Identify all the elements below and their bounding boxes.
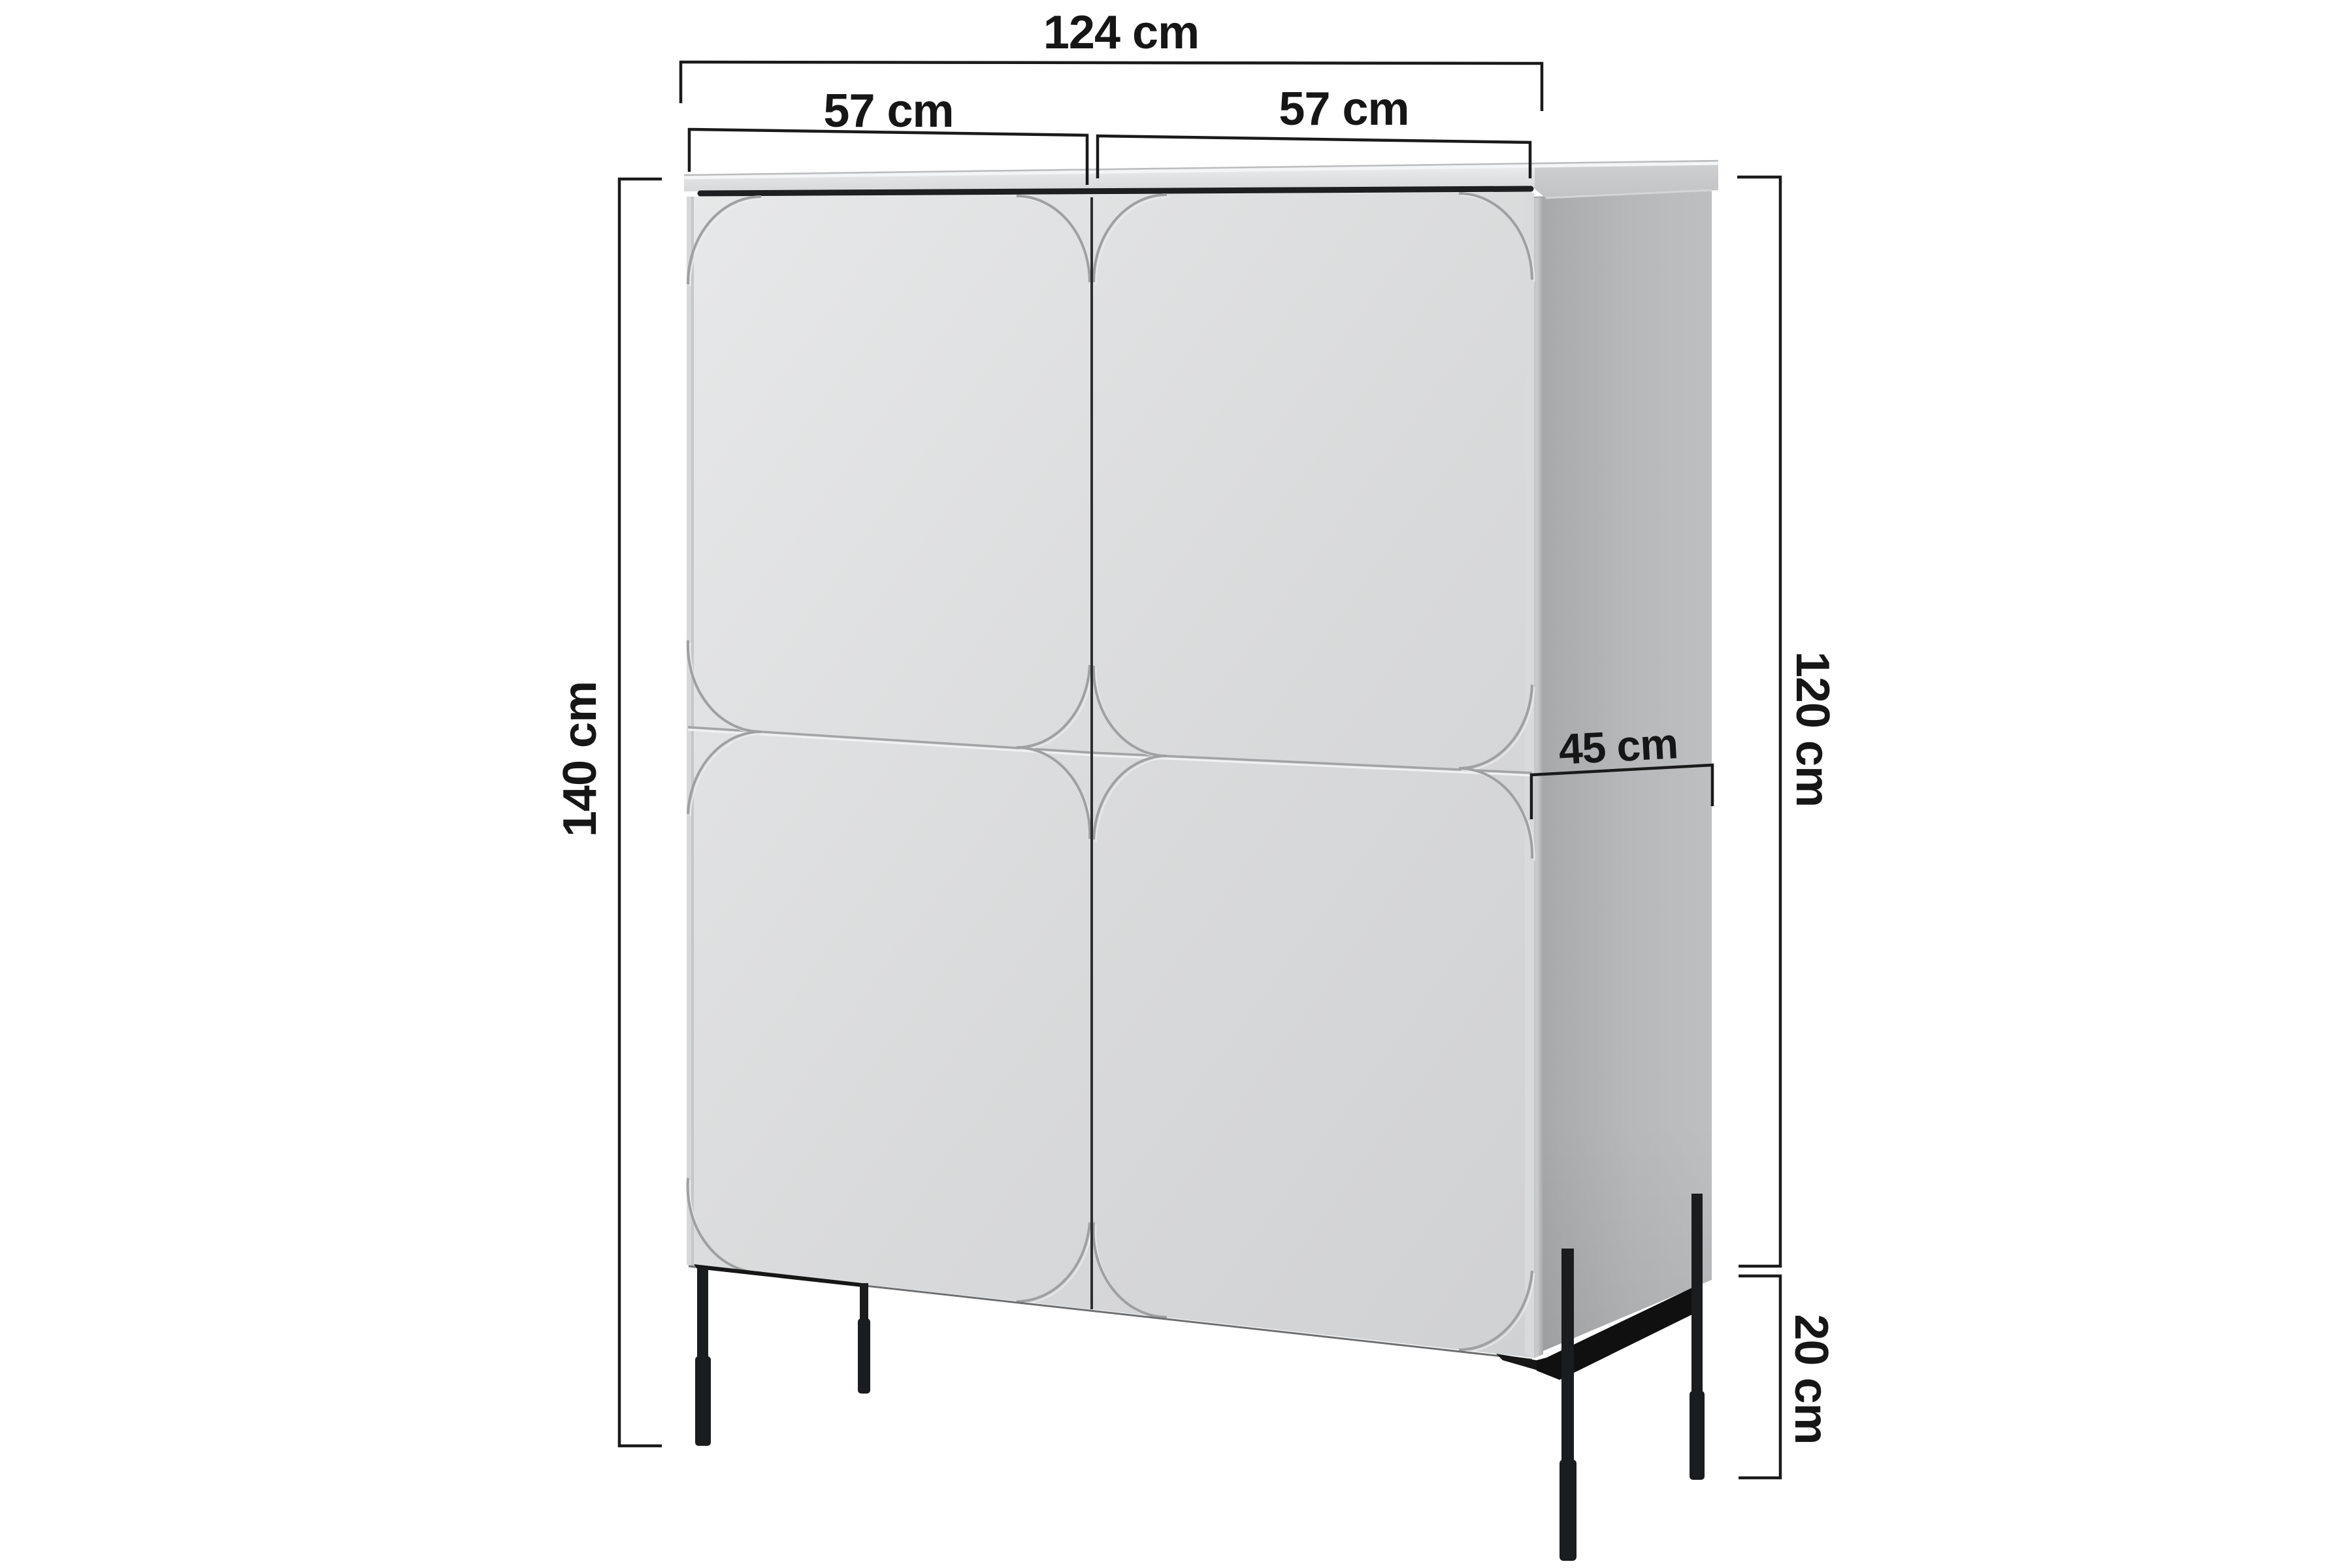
svg-text:57 cm: 57 cm bbox=[823, 85, 953, 137]
svg-text:57 cm: 57 cm bbox=[1279, 83, 1409, 135]
svg-text:20 cm: 20 cm bbox=[1785, 1314, 1837, 1444]
svg-text:124 cm: 124 cm bbox=[1043, 7, 1199, 59]
svg-text:45 cm: 45 cm bbox=[1558, 719, 1679, 773]
svg-text:120 cm: 120 cm bbox=[1786, 651, 1838, 807]
svg-text:140 cm: 140 cm bbox=[554, 681, 606, 837]
